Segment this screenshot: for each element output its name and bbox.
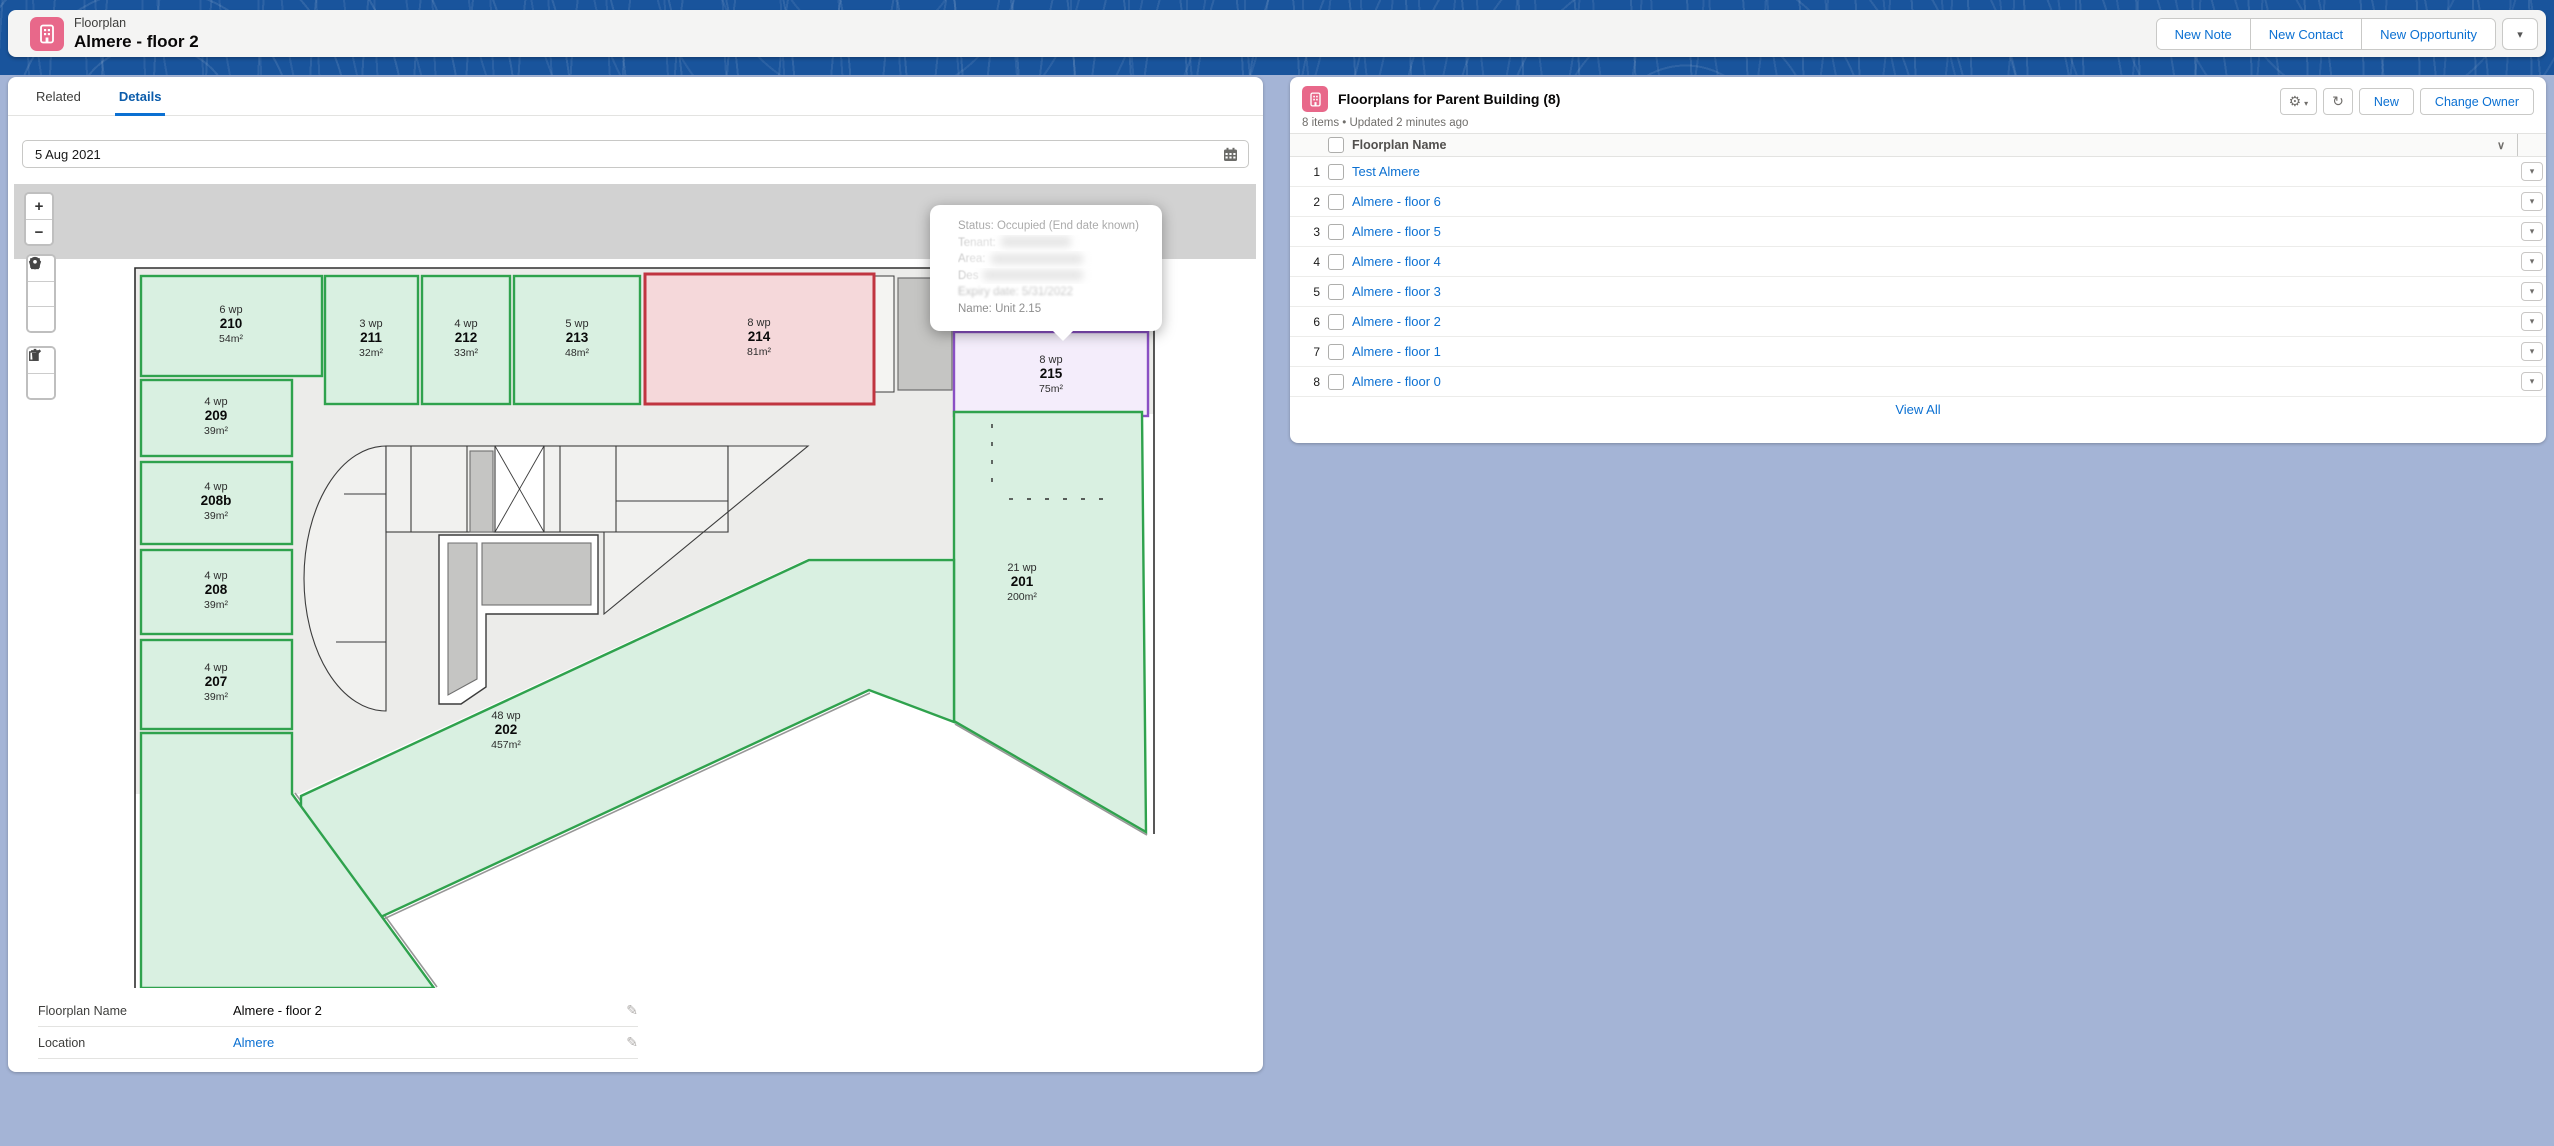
table-row: 6Almere - floor 2▾ [1290, 307, 2546, 337]
floorplan-record-icon [30, 17, 64, 51]
unit-212[interactable] [422, 276, 510, 404]
unit-213[interactable] [514, 276, 640, 404]
entity-label: Floorplan [74, 16, 126, 30]
page-title: Almere - floor 2 [74, 32, 199, 52]
row-number: 8 [1290, 375, 1320, 389]
list-settings-button[interactable]: ⚙▾ [2280, 88, 2318, 115]
unit-208[interactable] [141, 550, 292, 634]
related-list-meta: 8 items • Updated 2 minutes ago [1302, 117, 1468, 129]
related-list-card: Floorplans for Parent Building (8) 8 ite… [1290, 77, 2546, 443]
field-row: Floorplan NameAlmere - floor 2✎ [38, 995, 638, 1027]
tab-bar: RelatedDetails [8, 77, 1263, 116]
marker-pin-icon [28, 256, 42, 270]
field-value[interactable]: Almere [233, 1035, 618, 1050]
redacted-value [991, 254, 1083, 264]
unit-201[interactable] [954, 412, 1146, 832]
page: Floorplan Almere - floor 2 New NoteNew C… [0, 0, 2554, 1146]
unit-207[interactable] [141, 640, 292, 729]
tab-related[interactable]: Related [36, 77, 81, 116]
refresh-icon: ↻ [2332, 93, 2344, 109]
table-header-row: Floorplan Name ∨ [1290, 133, 2546, 157]
row-checkbox[interactable] [1328, 224, 1344, 240]
row-number: 6 [1290, 315, 1320, 329]
unit-209[interactable] [141, 380, 292, 456]
field-value: Almere - floor 2 [233, 1003, 618, 1018]
unit-215[interactable] [954, 332, 1148, 416]
floorplans-table: Floorplan Name ∨ 1Test Almere▾2Almere - … [1290, 133, 2546, 397]
tooltip-line: Area: [958, 251, 1152, 268]
tooltip-line: Status: Occupied (End date known) [958, 218, 1152, 235]
edit-toolbar [26, 346, 56, 400]
more-actions-button[interactable]: ▾ [2502, 18, 2538, 50]
column-chevron-icon[interactable]: ∨ [2497, 139, 2505, 152]
floorplan-link[interactable]: Almere - floor 1 [1352, 344, 1441, 359]
row-number: 3 [1290, 225, 1320, 239]
table-row: 1Test Almere▾ [1290, 157, 2546, 187]
select-all-checkbox[interactable] [1328, 137, 1344, 153]
row-actions-button[interactable]: ▾ [2521, 192, 2543, 211]
row-checkbox[interactable] [1328, 344, 1344, 360]
redacted-value [1001, 237, 1071, 247]
row-actions-button[interactable]: ▾ [2521, 162, 2543, 181]
floorplan-link[interactable]: Almere - floor 2 [1352, 314, 1441, 329]
tooltip-line: Expiry date: 5/31/2022 [958, 284, 1152, 301]
header-action-new-contact[interactable]: New Contact [2250, 19, 2361, 49]
table-row: 7Almere - floor 1▾ [1290, 337, 2546, 367]
row-actions-button[interactable]: ▾ [2521, 222, 2543, 241]
field-row: LocationAlmere✎ [38, 1027, 638, 1059]
row-number: 5 [1290, 285, 1320, 299]
refresh-button[interactable]: ↻ [2323, 88, 2353, 115]
tooltip-arrow [1052, 330, 1074, 341]
table-row: 8Almere - floor 0▾ [1290, 367, 2546, 397]
floorplans-list-icon [1302, 86, 1328, 112]
table-row: 4Almere - floor 4▾ [1290, 247, 2546, 277]
record-header: Floorplan Almere - floor 2 New NoteNew C… [8, 10, 2546, 57]
related-list-buttons: ⚙▾ ↻ NewChange Owner [2280, 88, 2534, 115]
row-actions-button[interactable]: ▾ [2521, 312, 2543, 331]
draw-marker-button[interactable] [28, 306, 54, 331]
row-checkbox[interactable] [1328, 374, 1344, 390]
floorplan-map[interactable]: 6 wp21054m²4 wp20939m²4 wp208b39m²4 wp20… [14, 184, 1256, 988]
building-icon [37, 24, 57, 44]
row-checkbox[interactable] [1328, 194, 1344, 210]
row-actions-button[interactable]: ▾ [2521, 372, 2543, 391]
zoom-in-button[interactable]: + [26, 194, 52, 219]
tooltip-line: Name: Unit 2.15 [958, 301, 1152, 318]
row-checkbox[interactable] [1328, 314, 1344, 330]
field-label: Floorplan Name [38, 1004, 233, 1018]
table-row: 5Almere - floor 3▾ [1290, 277, 2546, 307]
floorplan-link[interactable]: Almere - floor 3 [1352, 284, 1441, 299]
gear-icon: ⚙ [2289, 93, 2302, 109]
table-row: 2Almere - floor 6▾ [1290, 187, 2546, 217]
view-all-link[interactable]: View All [1895, 402, 1940, 417]
date-field[interactable]: 5 Aug 2021 [22, 140, 1249, 168]
unit-211[interactable] [325, 276, 418, 404]
unit-208b[interactable] [141, 462, 292, 544]
trash-icon [28, 348, 42, 362]
field-label: Location [38, 1036, 233, 1050]
edit-pencil-icon[interactable]: ✎ [618, 1002, 638, 1019]
draw-toolbar [26, 254, 56, 333]
row-actions-button[interactable]: ▾ [2521, 252, 2543, 271]
edit-pencil-icon[interactable]: ✎ [618, 1034, 638, 1051]
table-row: 3Almere - floor 5▾ [1290, 217, 2546, 247]
unit-214[interactable] [645, 274, 874, 404]
floorplan-link[interactable]: Almere - floor 6 [1352, 194, 1441, 209]
row-number: 4 [1290, 255, 1320, 269]
chevron-down-icon: ▾ [2304, 99, 2308, 108]
date-value: 5 Aug 2021 [35, 147, 101, 162]
record-fields: Floorplan NameAlmere - floor 2✎LocationA… [38, 995, 638, 1059]
tab-details[interactable]: Details [119, 77, 162, 116]
floorplan-link[interactable]: Almere - floor 5 [1352, 224, 1441, 239]
floorplan-link[interactable]: Almere - floor 4 [1352, 254, 1441, 269]
unit-210[interactable] [141, 276, 322, 376]
row-actions-button[interactable]: ▾ [2521, 342, 2543, 361]
unit-tooltip: Status: Occupied (End date known)Tenant:… [930, 205, 1162, 331]
draw-rectangle-button[interactable] [28, 281, 54, 306]
redacted-value [983, 270, 1083, 280]
row-checkbox[interactable] [1328, 254, 1344, 270]
header-actions: New NoteNew ContactNew Opportunity [2156, 18, 2496, 50]
tooltip-line: Tenant: [958, 235, 1152, 252]
related-list-title[interactable]: Floorplans for Parent Building (8) [1338, 91, 1560, 107]
change-owner-button[interactable]: Change Owner [2420, 88, 2534, 115]
header-action-new-opportunity[interactable]: New Opportunity [2361, 19, 2495, 49]
header-action-new-note[interactable]: New Note [2157, 19, 2250, 49]
delete-layers-button[interactable] [28, 373, 54, 398]
calendar-icon[interactable] [1223, 147, 1238, 167]
row-number: 7 [1290, 345, 1320, 359]
record-detail-card: RelatedDetails 5 Aug 2021 [8, 77, 1263, 1072]
row-checkbox[interactable] [1328, 164, 1344, 180]
floorplan-link[interactable]: Test Almere [1352, 164, 1420, 179]
row-actions-button[interactable]: ▾ [2521, 282, 2543, 301]
new-button[interactable]: New [2359, 88, 2414, 115]
row-number: 1 [1290, 165, 1320, 179]
row-number: 2 [1290, 195, 1320, 209]
zoom-control: + − [24, 192, 54, 246]
corridor-cell [874, 276, 894, 392]
column-header-floorplan-name[interactable]: Floorplan Name [1352, 138, 1446, 152]
row-checkbox[interactable] [1328, 284, 1344, 300]
floorplan-link[interactable]: Almere - floor 0 [1352, 374, 1441, 389]
tooltip-line: Des [958, 268, 1152, 285]
zoom-out-button[interactable]: − [26, 219, 52, 244]
